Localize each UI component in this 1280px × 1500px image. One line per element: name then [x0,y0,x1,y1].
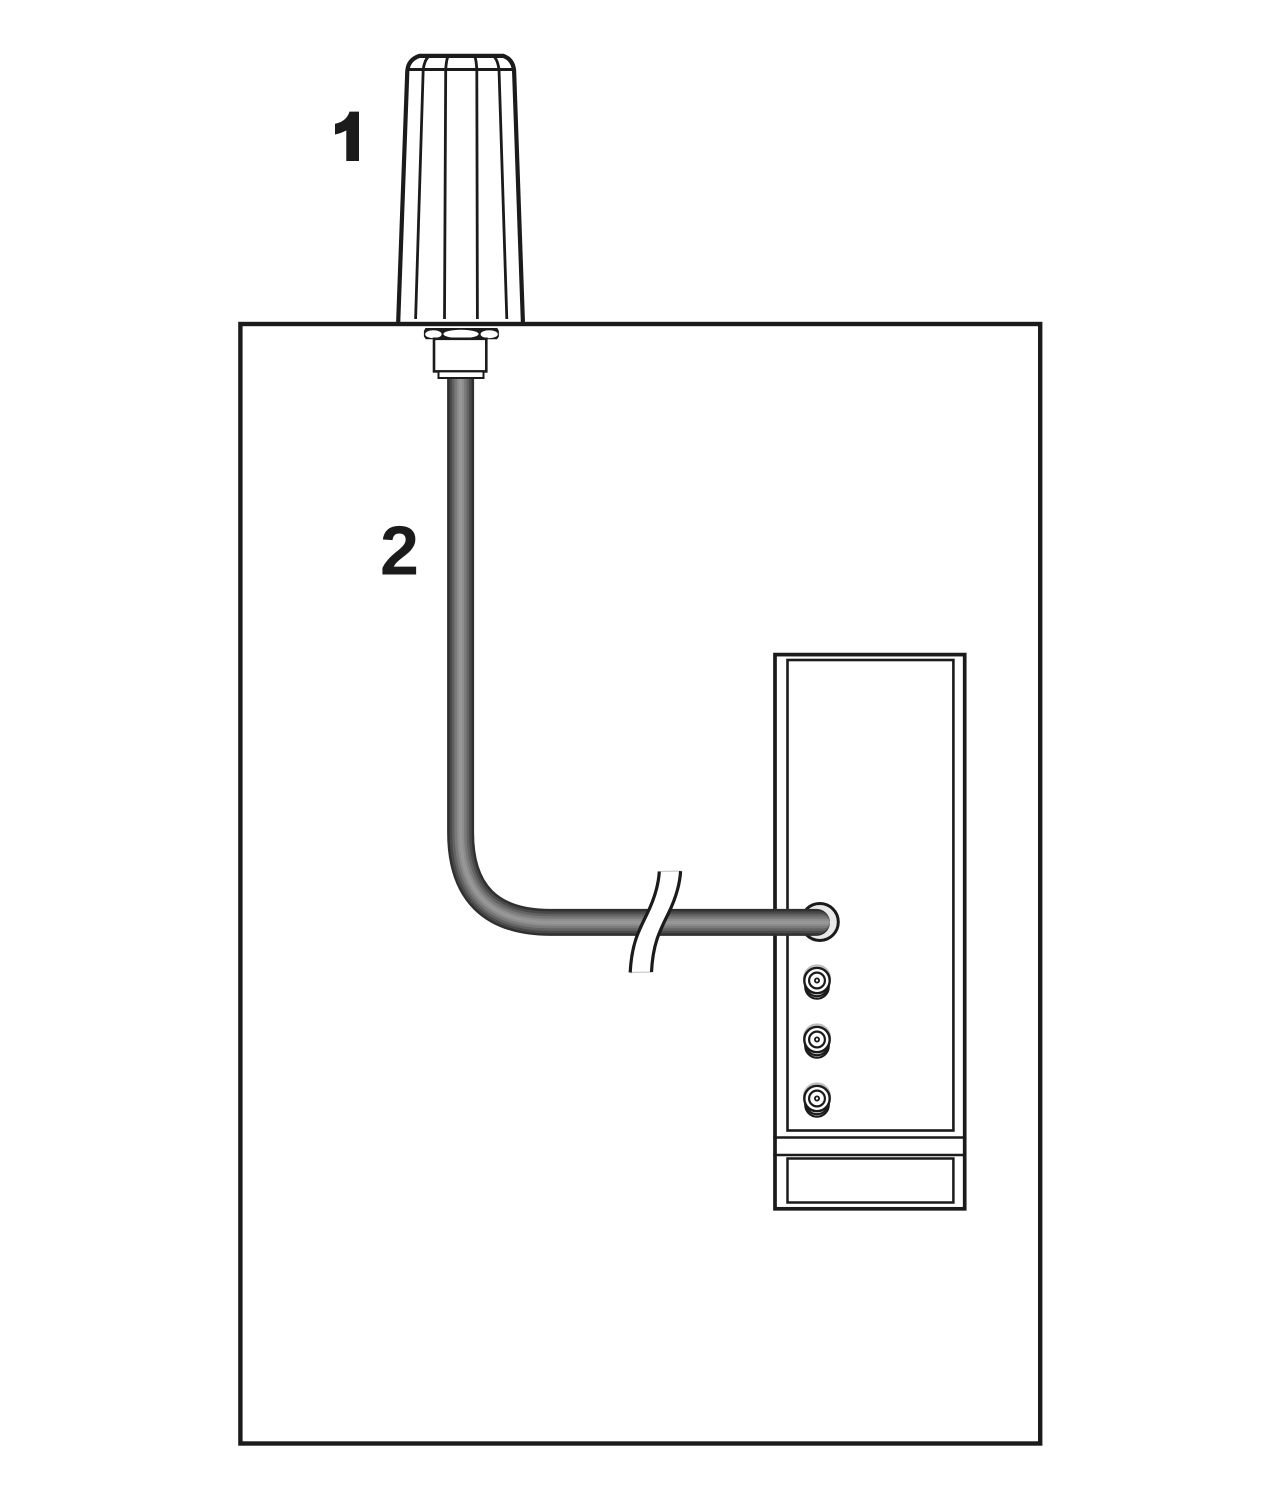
svg-text:2: 2 [380,512,419,590]
